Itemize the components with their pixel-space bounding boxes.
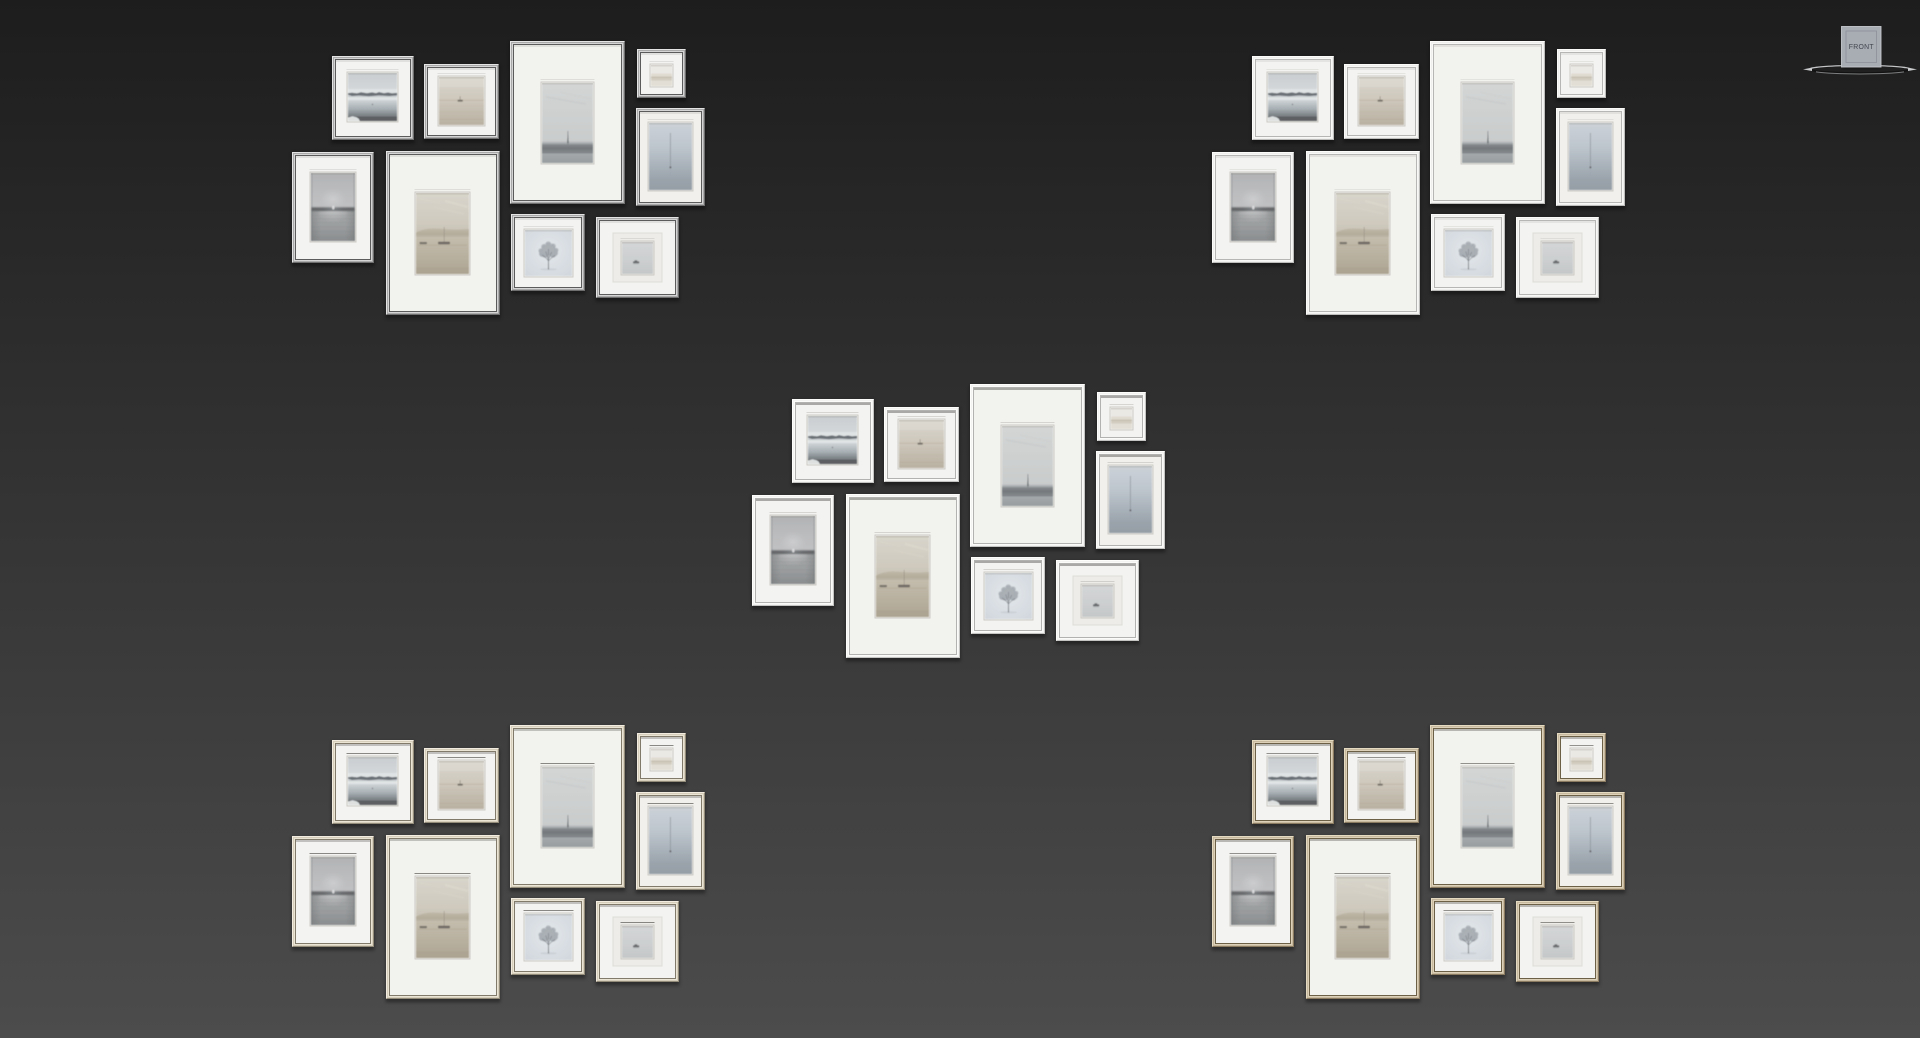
svg-text:FRONT: FRONT — [1849, 44, 1875, 51]
